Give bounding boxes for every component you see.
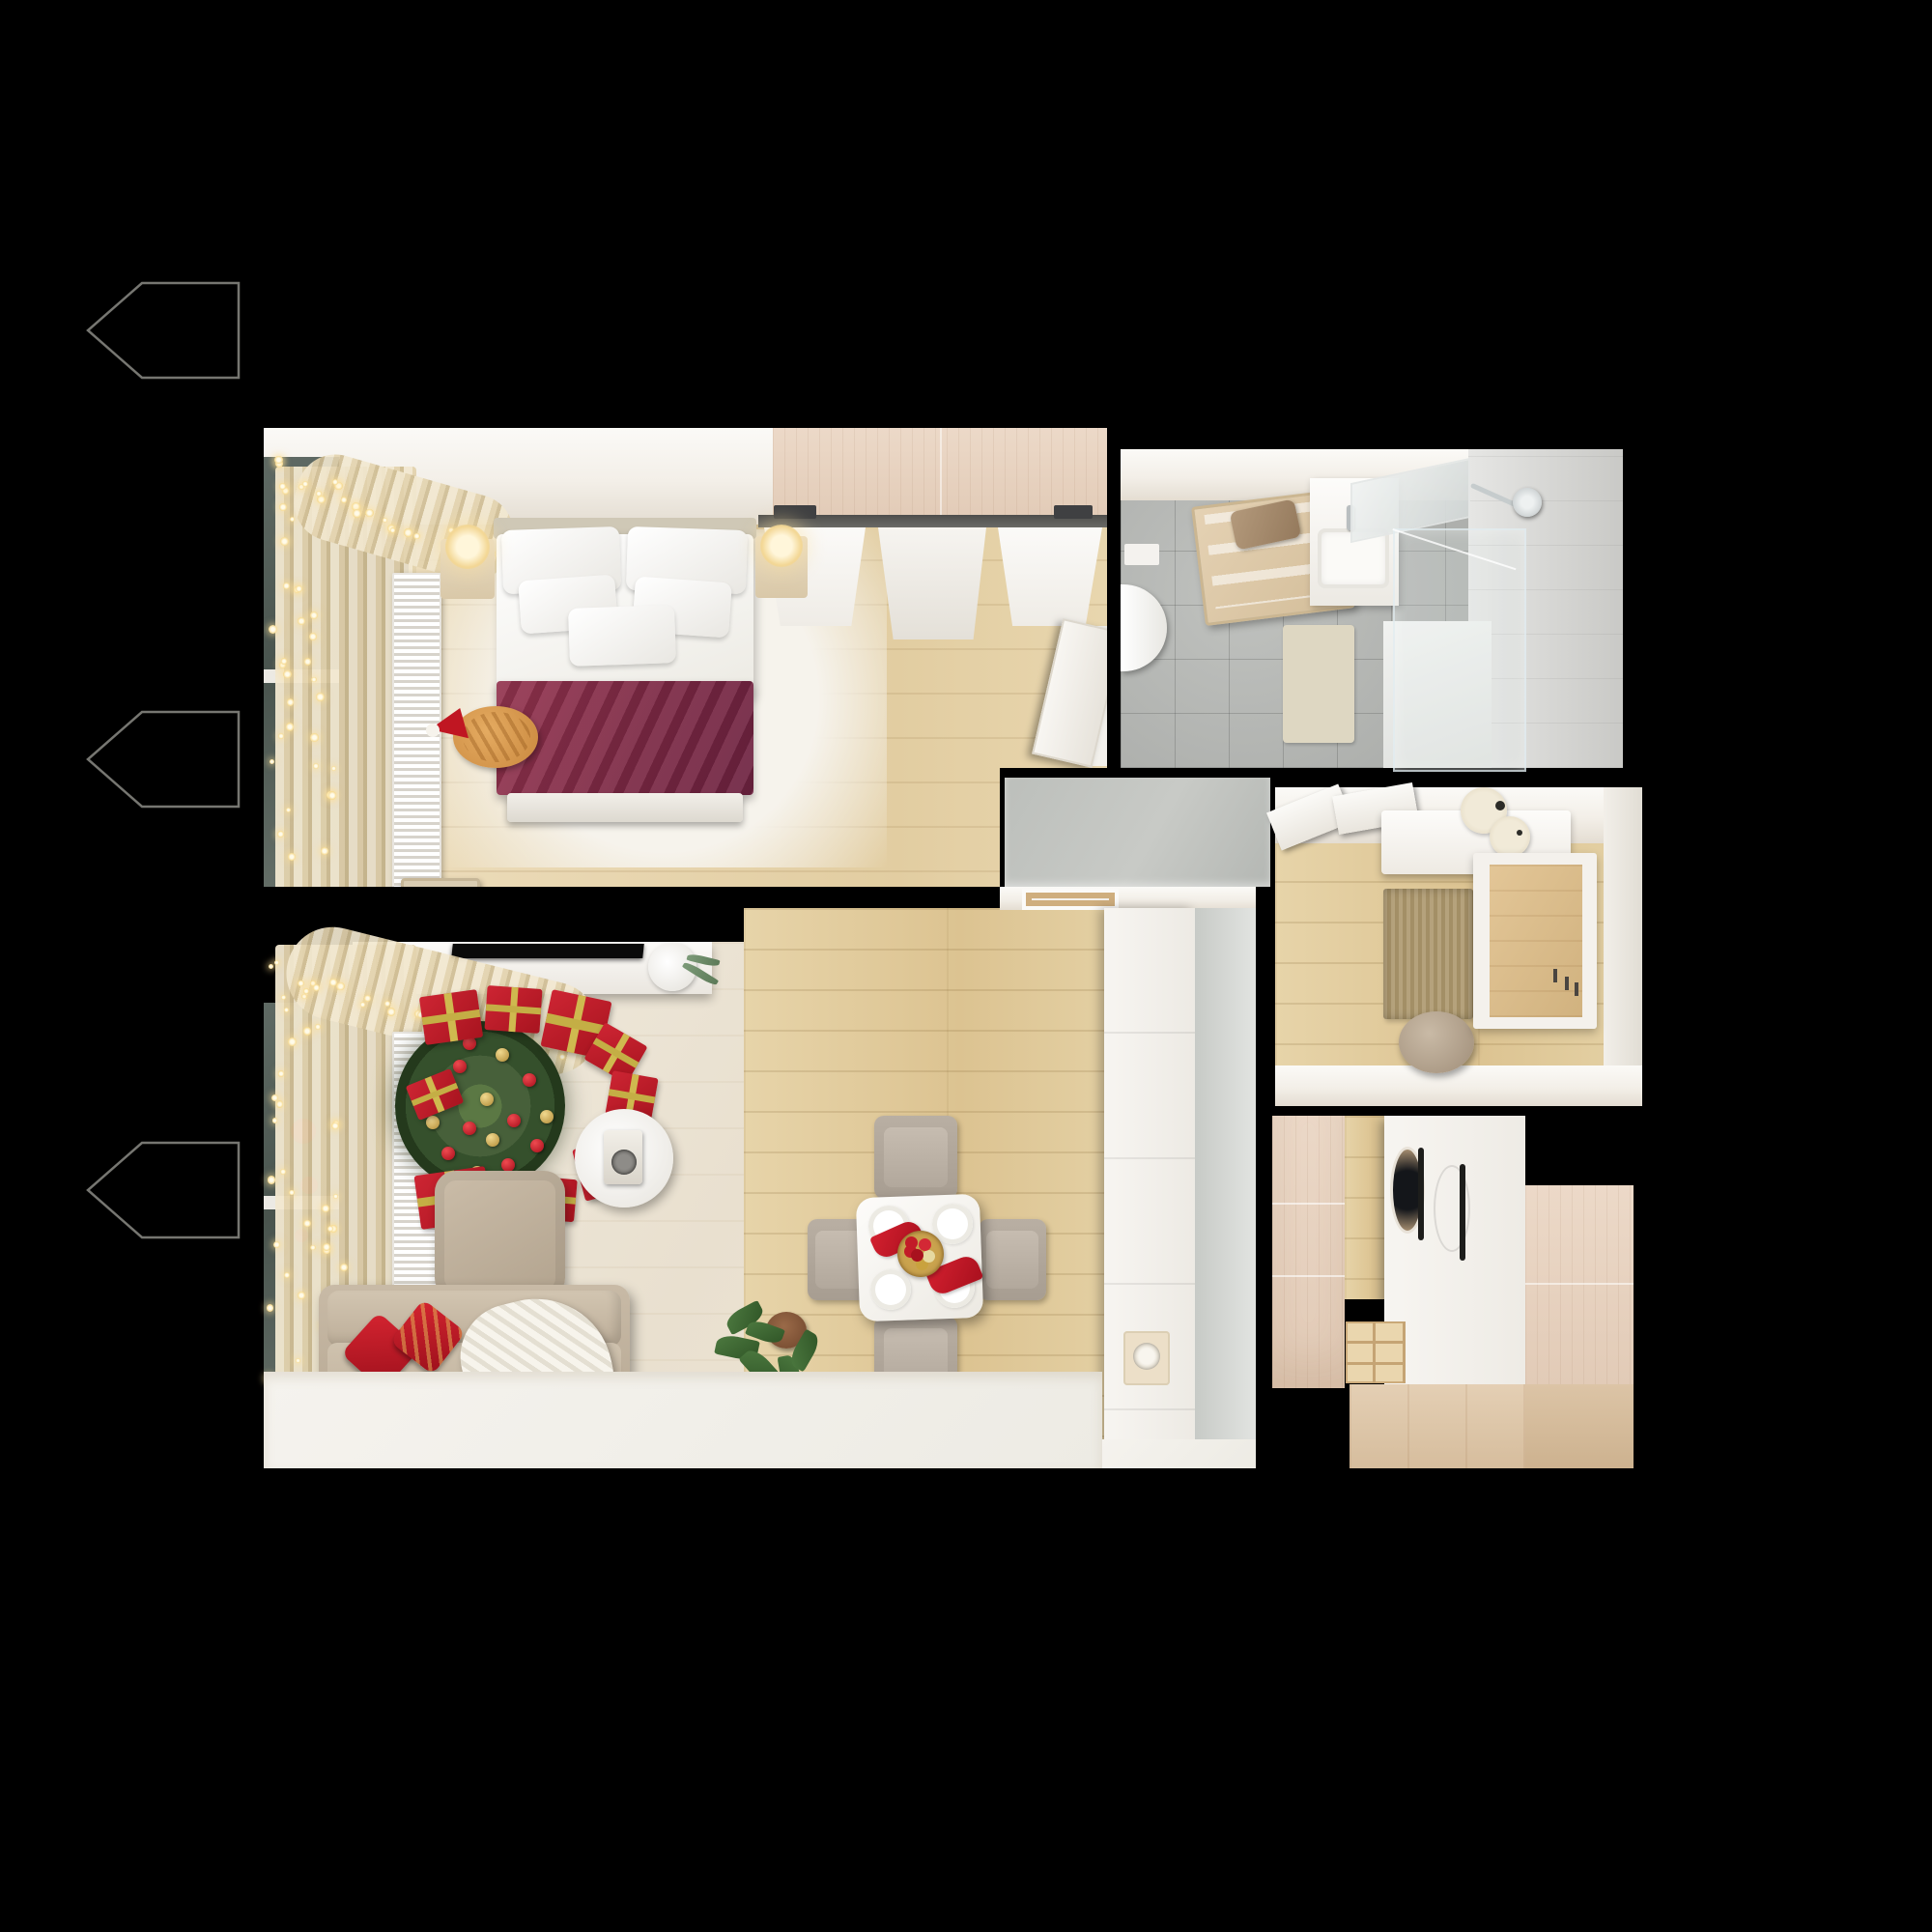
string-light bbox=[316, 693, 325, 701]
santa-hat-pom bbox=[426, 724, 440, 737]
string-light bbox=[313, 763, 320, 770]
string-light bbox=[302, 481, 308, 487]
string-light bbox=[353, 509, 361, 518]
string-light bbox=[281, 658, 287, 664]
string-light bbox=[387, 1008, 395, 1015]
string-light bbox=[273, 1241, 280, 1248]
string-light bbox=[280, 537, 289, 546]
ornament-bowl bbox=[897, 1231, 944, 1277]
appliance-handle-1 bbox=[1418, 1148, 1424, 1240]
ornament-red bbox=[441, 1147, 455, 1160]
string-light bbox=[298, 980, 303, 986]
string-light bbox=[279, 503, 287, 511]
wardrobe-handle-right bbox=[1054, 505, 1093, 519]
kitchen-bottom-floor bbox=[1102, 1439, 1256, 1468]
string-light bbox=[331, 1122, 339, 1130]
string-light bbox=[277, 831, 284, 838]
room-laundry bbox=[1270, 1111, 1637, 1468]
hall-bottom-wall bbox=[1275, 1065, 1642, 1106]
string-light bbox=[287, 698, 294, 705]
dining-chair-east bbox=[979, 1219, 1046, 1300]
string-light bbox=[328, 791, 336, 799]
string-light bbox=[364, 995, 371, 1002]
hall-niche-wood-back bbox=[1490, 865, 1582, 1017]
string-light bbox=[274, 456, 282, 464]
string-light bbox=[288, 853, 296, 861]
laundry-base-cabinet-right bbox=[1525, 1384, 1634, 1468]
string-light bbox=[321, 847, 328, 855]
room-living-kitchen bbox=[264, 887, 1256, 1468]
string-light bbox=[315, 1024, 321, 1030]
string-light bbox=[274, 960, 279, 965]
string-light bbox=[286, 723, 294, 730]
ornament-red bbox=[463, 1122, 476, 1135]
laundry-black-notch bbox=[1525, 1111, 1637, 1185]
kitchen-sink-basin bbox=[1133, 1343, 1160, 1370]
string-light bbox=[331, 766, 336, 771]
string-light bbox=[311, 677, 316, 682]
string-light bbox=[360, 1002, 365, 1007]
string-light bbox=[309, 633, 317, 640]
appliance-handle-2 bbox=[1460, 1164, 1465, 1261]
ornament-gold bbox=[480, 1093, 494, 1106]
string-light bbox=[333, 1194, 338, 1199]
string-light bbox=[283, 670, 292, 679]
floorplan-render bbox=[0, 0, 1932, 1932]
hall-candle-plate-2 bbox=[1490, 816, 1530, 857]
kitchen-tall-units bbox=[1195, 908, 1256, 1457]
string-light bbox=[340, 1264, 348, 1271]
string-light bbox=[383, 518, 388, 524]
string-light bbox=[384, 1001, 391, 1008]
string-light bbox=[413, 533, 419, 539]
string-light bbox=[267, 1304, 273, 1311]
string-light bbox=[284, 1008, 290, 1013]
string-light bbox=[284, 1272, 290, 1278]
string-light bbox=[278, 1070, 285, 1077]
ornament-red bbox=[523, 1073, 536, 1087]
ornament-red bbox=[530, 1139, 544, 1152]
ornament-gold bbox=[496, 1048, 509, 1062]
ornament-gold bbox=[486, 1133, 499, 1147]
string-light bbox=[276, 1100, 283, 1107]
string-light bbox=[269, 964, 273, 969]
string-light bbox=[272, 1118, 277, 1122]
string-light bbox=[322, 1205, 329, 1212]
balcony-symbol-top bbox=[82, 280, 246, 381]
hall-candle-wicks bbox=[1495, 801, 1505, 810]
string-light bbox=[278, 733, 284, 739]
wardrobe-handle-left bbox=[774, 505, 816, 519]
string-light bbox=[304, 658, 311, 665]
ornament-red bbox=[453, 1060, 467, 1073]
string-light bbox=[336, 982, 345, 991]
string-light bbox=[303, 1027, 311, 1035]
hall-niche-hooks bbox=[1553, 969, 1557, 982]
ornament-red bbox=[501, 1158, 515, 1172]
bath-mat bbox=[1283, 625, 1354, 743]
wardrobe-top-seam bbox=[940, 428, 942, 520]
bed-bench bbox=[507, 793, 743, 822]
ornament-bowl-balls bbox=[905, 1236, 918, 1249]
laundry-right-panels bbox=[1525, 1185, 1634, 1384]
string-light bbox=[296, 585, 302, 592]
gift-box bbox=[484, 985, 542, 1034]
string-light bbox=[283, 582, 290, 589]
room-entry-hall bbox=[1275, 787, 1642, 1106]
ceiling-vent bbox=[1022, 889, 1119, 910]
ornament-gold bbox=[426, 1116, 440, 1129]
room-bedroom bbox=[264, 428, 1107, 929]
string-light bbox=[313, 984, 320, 991]
string-light bbox=[310, 1245, 316, 1251]
laundry-right-panel-seam bbox=[1525, 1283, 1634, 1285]
string-light bbox=[279, 483, 286, 490]
string-light bbox=[288, 1037, 297, 1046]
room-bathroom bbox=[1121, 449, 1623, 768]
string-light bbox=[296, 1358, 300, 1363]
lamp-left bbox=[445, 525, 490, 569]
armchair bbox=[435, 1171, 565, 1299]
string-light bbox=[303, 988, 308, 993]
string-light bbox=[268, 1176, 275, 1183]
dining-chair-north bbox=[874, 1116, 957, 1199]
string-light bbox=[316, 491, 322, 497]
living-white-rug bbox=[264, 1372, 1102, 1468]
string-light bbox=[303, 1220, 311, 1228]
laundry-base-cabinet-left bbox=[1350, 1384, 1525, 1468]
string-light bbox=[310, 733, 318, 741]
hall-right-wall bbox=[1604, 787, 1642, 1106]
string-light bbox=[404, 528, 412, 536]
string-light bbox=[271, 1094, 278, 1101]
balcony-symbol-middle bbox=[82, 709, 246, 810]
cat-stripes bbox=[463, 712, 530, 762]
camera-lens bbox=[611, 1150, 637, 1175]
string-light bbox=[281, 995, 286, 1000]
string-light bbox=[280, 1169, 286, 1175]
string-light bbox=[286, 808, 291, 812]
cubby-grid bbox=[1346, 1321, 1406, 1383]
wardrobe-door-middle bbox=[878, 527, 986, 639]
string-light bbox=[290, 517, 295, 522]
hall-pouf bbox=[1399, 1011, 1474, 1073]
bed-pillow-center bbox=[568, 605, 676, 667]
shower-head bbox=[1513, 488, 1542, 517]
string-light bbox=[301, 994, 306, 999]
laundry-left-panel-seams bbox=[1272, 1275, 1345, 1277]
ornament-gold bbox=[540, 1110, 554, 1123]
string-light bbox=[298, 617, 305, 625]
lamp-right bbox=[760, 525, 803, 567]
string-light bbox=[341, 497, 348, 503]
string-light bbox=[310, 611, 318, 619]
wardrobe-door-right bbox=[998, 527, 1102, 626]
string-light bbox=[269, 625, 277, 634]
flush-plate bbox=[1124, 544, 1159, 565]
place-setting bbox=[870, 1269, 911, 1310]
string-light bbox=[298, 1292, 305, 1299]
string-light bbox=[270, 759, 274, 764]
string-light bbox=[365, 509, 374, 518]
laundry-left-panel bbox=[1272, 1116, 1345, 1388]
ornament-red bbox=[507, 1114, 521, 1127]
balcony-symbol-bottom bbox=[82, 1140, 246, 1240]
gift-box bbox=[419, 989, 483, 1045]
string-light bbox=[289, 1190, 295, 1196]
hall-rug bbox=[1383, 889, 1473, 1019]
room-corridor bbox=[1005, 778, 1270, 887]
string-light bbox=[329, 979, 337, 986]
string-light bbox=[390, 527, 395, 532]
